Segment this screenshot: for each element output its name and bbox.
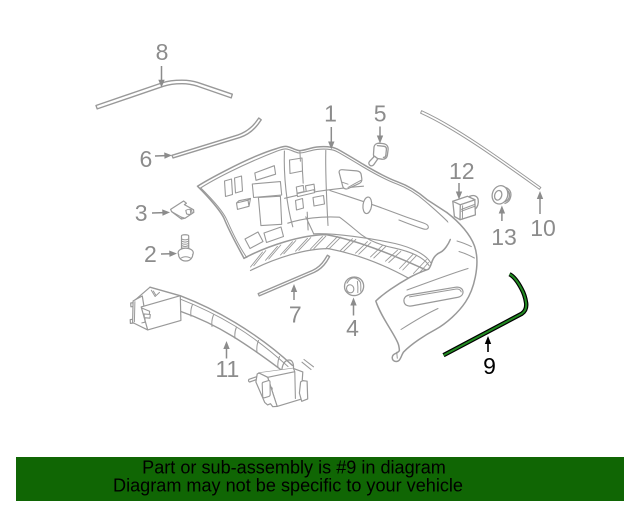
svg-text:13: 13 [491, 224, 517, 250]
svg-text:9: 9 [483, 353, 496, 379]
svg-text:5: 5 [374, 100, 387, 126]
svg-text:1: 1 [324, 100, 337, 126]
svg-text:12: 12 [449, 158, 475, 184]
svg-text:Diagram may not be specific to: Diagram may not be specific to your vehi… [113, 476, 463, 496]
svg-text:3: 3 [135, 200, 148, 226]
svg-text:8: 8 [156, 39, 169, 65]
svg-text:2: 2 [144, 241, 157, 267]
svg-text:Part or sub-assembly is #9 in: Part or sub-assembly is #9 in diagram [142, 458, 446, 478]
svg-text:6: 6 [140, 146, 153, 172]
svg-text:11: 11 [215, 356, 239, 382]
svg-text:10: 10 [530, 215, 556, 241]
svg-text:4: 4 [346, 315, 359, 341]
svg-text:7: 7 [289, 302, 302, 328]
